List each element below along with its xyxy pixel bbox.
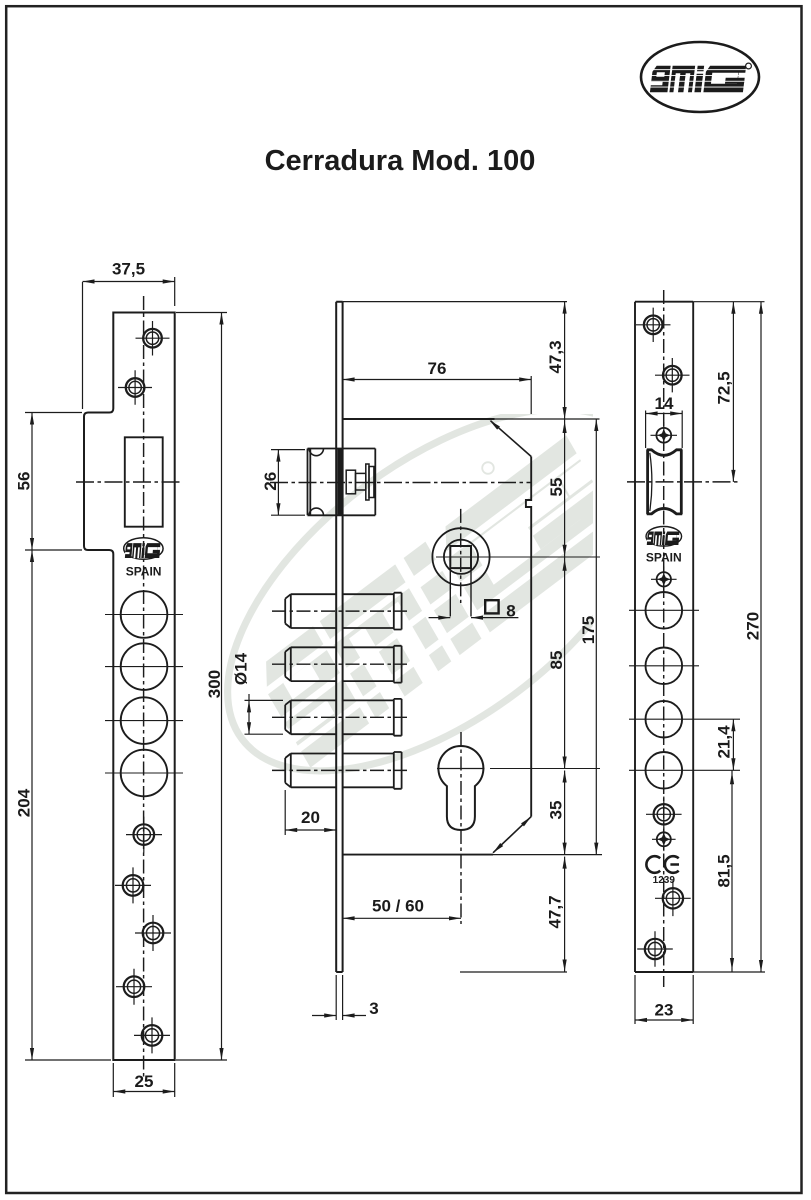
svg-text:270: 270 — [744, 612, 763, 640]
svg-text:175: 175 — [579, 616, 598, 644]
svg-text:35: 35 — [547, 801, 566, 820]
svg-text:26: 26 — [261, 472, 280, 491]
svg-text:Cerradura Mod. 100: Cerradura Mod. 100 — [265, 145, 536, 177]
svg-text:47,3: 47,3 — [546, 340, 565, 373]
svg-text:204: 204 — [15, 788, 34, 817]
svg-text:85: 85 — [547, 651, 566, 670]
svg-text:8: 8 — [506, 602, 515, 621]
svg-text:76: 76 — [428, 359, 447, 378]
svg-text:1239: 1239 — [653, 875, 676, 886]
svg-text:47,7: 47,7 — [546, 895, 565, 928]
svg-text:81,5: 81,5 — [715, 854, 734, 887]
svg-text:25: 25 — [135, 1072, 154, 1091]
svg-text:14: 14 — [655, 394, 674, 413]
svg-text:3: 3 — [369, 999, 378, 1018]
svg-text:23: 23 — [655, 1001, 674, 1020]
svg-text:37,5: 37,5 — [112, 260, 145, 279]
svg-text:20: 20 — [301, 808, 320, 827]
svg-text:SPAIN: SPAIN — [126, 565, 162, 579]
svg-text:56: 56 — [15, 472, 34, 491]
svg-text:21,4: 21,4 — [715, 725, 734, 759]
svg-text:55: 55 — [547, 478, 566, 497]
svg-text:300: 300 — [205, 670, 224, 698]
svg-text:50 / 60: 50 / 60 — [372, 897, 424, 916]
svg-text:72,5: 72,5 — [715, 371, 734, 404]
svg-text:Ø14: Ø14 — [232, 652, 251, 685]
svg-text:SPAIN: SPAIN — [646, 551, 682, 565]
